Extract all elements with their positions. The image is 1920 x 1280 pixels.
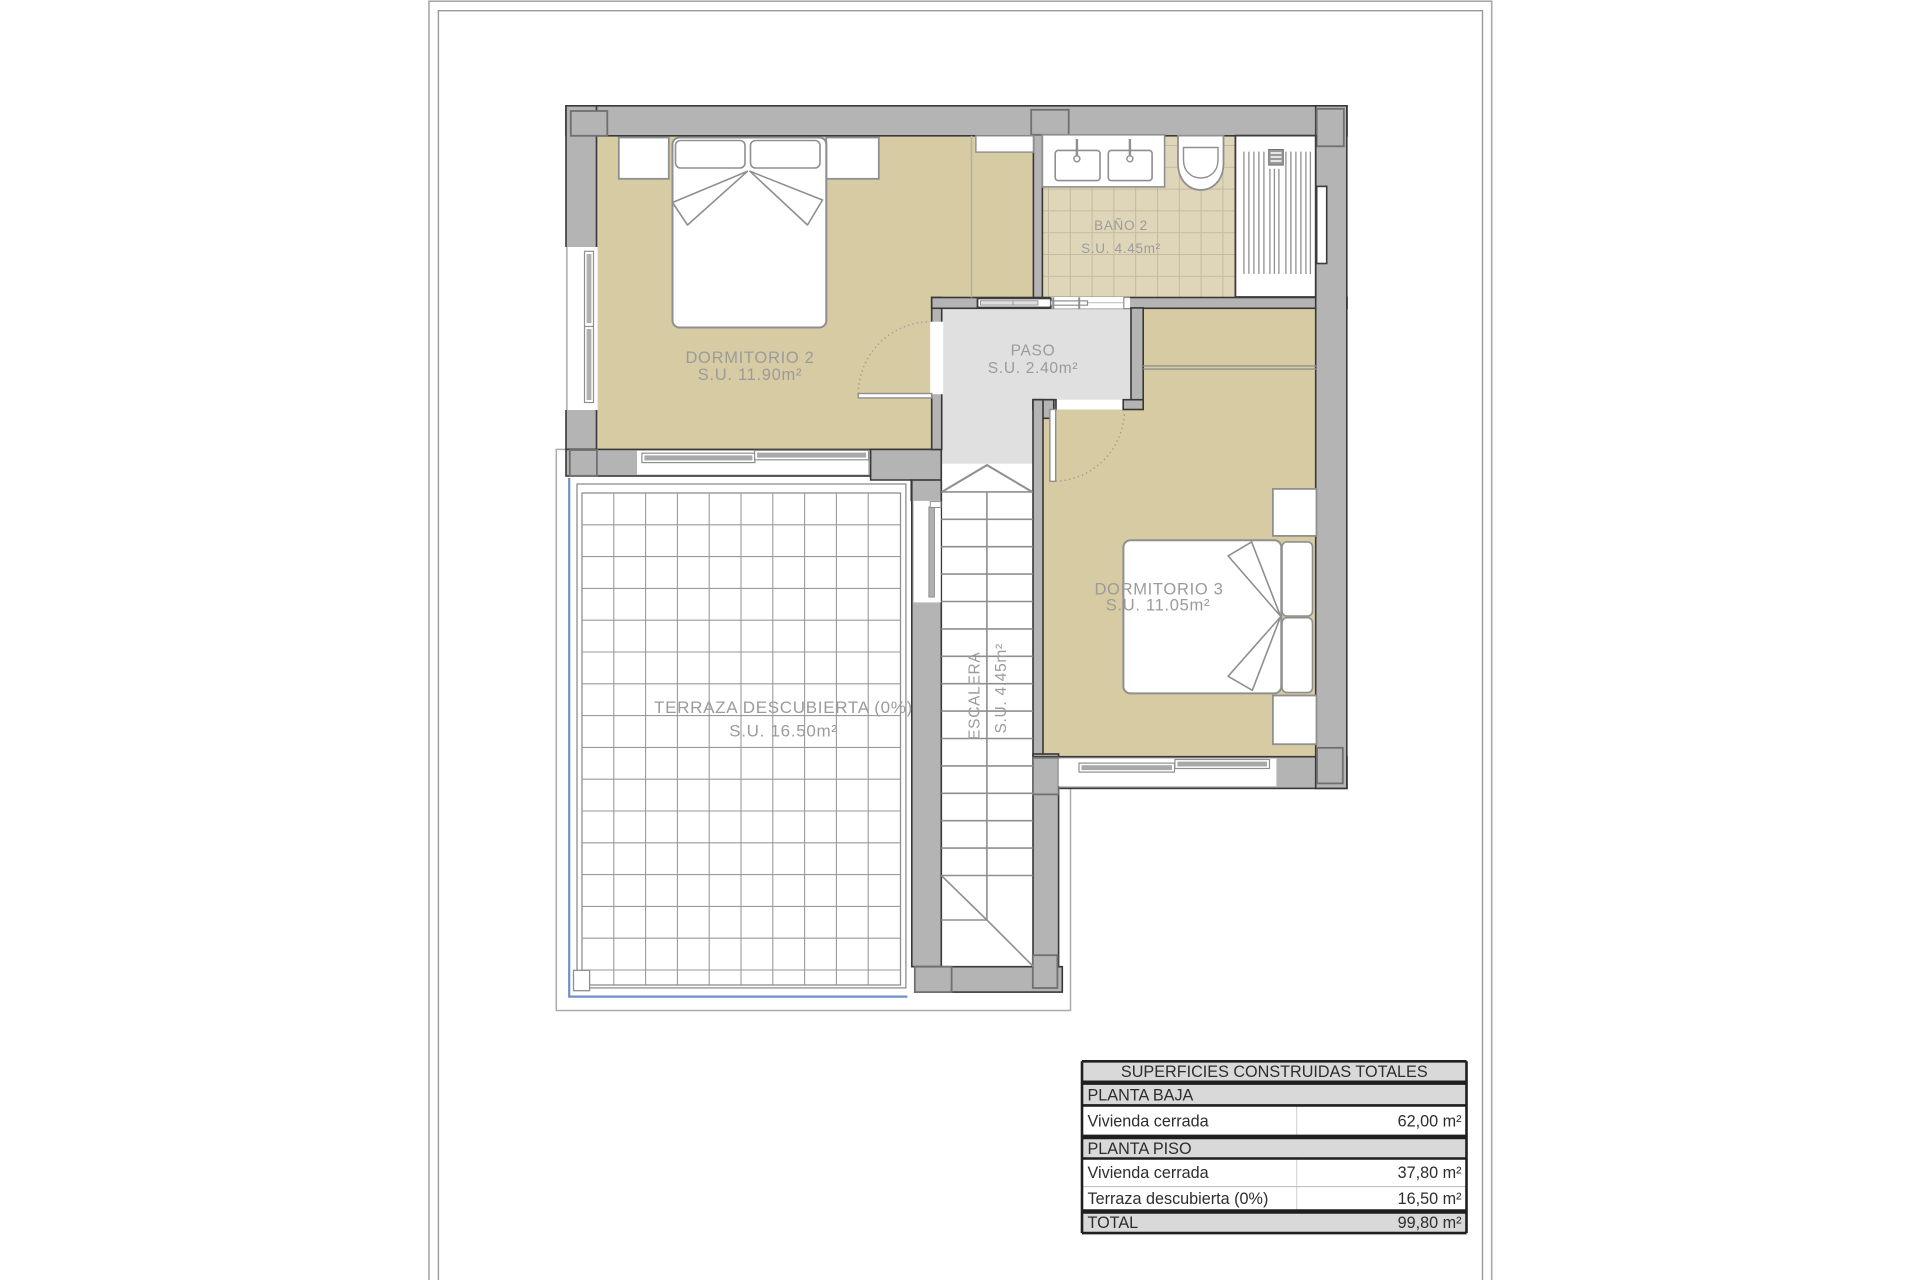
svg-text:S.U. 2.40m²: S.U. 2.40m² (988, 360, 1078, 377)
svg-text:99,80 m²: 99,80 m² (1398, 1214, 1462, 1232)
svg-text:TOTAL: TOTAL (1088, 1214, 1139, 1232)
svg-text:S.U. 4.45m²: S.U. 4.45m² (1081, 241, 1161, 256)
svg-text:PLANTA BAJA: PLANTA BAJA (1088, 1086, 1194, 1104)
svg-text:DORMITORIO 3: DORMITORIO 3 (1094, 580, 1223, 598)
svg-text:Vivienda cerrada: Vivienda cerrada (1088, 1164, 1209, 1182)
svg-text:TERRAZA DESCUBIERTA (0%): TERRAZA DESCUBIERTA (0%) (654, 698, 913, 717)
svg-text:BAÑO 2: BAÑO 2 (1094, 218, 1148, 233)
svg-text:62,00 m²: 62,00 m² (1398, 1112, 1462, 1130)
svg-text:Terraza descubierta (0%): Terraza descubierta (0%) (1088, 1190, 1269, 1208)
svg-text:DORMITORIO 2: DORMITORIO 2 (685, 349, 814, 367)
svg-text:S.U. 16.50m²: S.U. 16.50m² (729, 721, 838, 740)
svg-text:ESCALERA: ESCALERA (967, 652, 984, 740)
svg-text:Vivienda cerrada: Vivienda cerrada (1088, 1112, 1209, 1130)
svg-text:PASO: PASO (1011, 343, 1056, 360)
svg-text:PLANTA PISO: PLANTA PISO (1088, 1140, 1192, 1158)
svg-text:16,50 m²: 16,50 m² (1398, 1190, 1462, 1208)
svg-text:37,80 m²: 37,80 m² (1398, 1164, 1462, 1182)
svg-text:S.U. 4.45m²: S.U. 4.45m² (993, 643, 1010, 733)
svg-text:S.U. 11.05m²: S.U. 11.05m² (1106, 597, 1210, 615)
svg-text:S.U. 11.90m²: S.U. 11.90m² (698, 366, 802, 384)
svg-text:SUPERFICIES CONSTRUIDAS TOTALE: SUPERFICIES CONSTRUIDAS TOTALES (1121, 1063, 1428, 1081)
